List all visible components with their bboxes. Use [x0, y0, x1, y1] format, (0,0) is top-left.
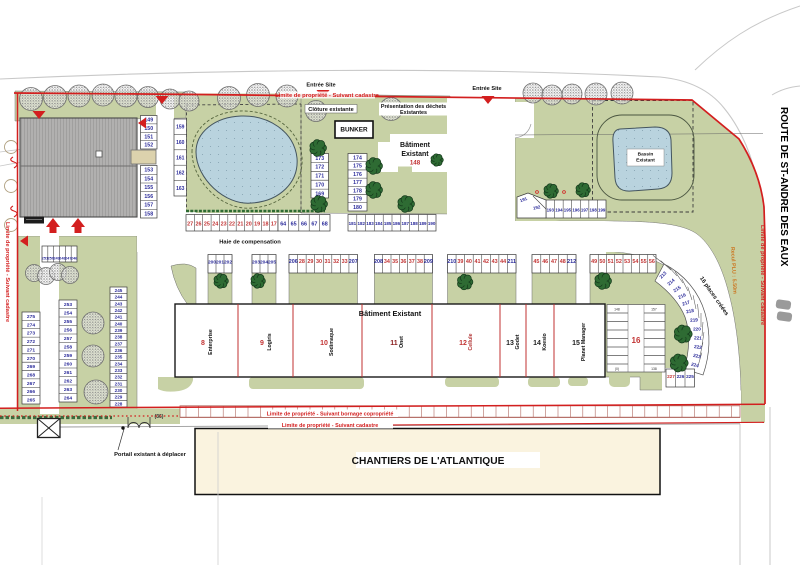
svg-text:228: 228: [115, 401, 123, 406]
svg-text:253: 253: [64, 302, 72, 308]
svg-text:256: 256: [64, 328, 72, 334]
svg-text:27: 27: [187, 222, 193, 228]
svg-text:23: 23: [221, 222, 227, 228]
svg-text:207: 207: [349, 259, 358, 265]
svg-text:182: 182: [357, 221, 365, 226]
svg-text:162: 162: [176, 171, 185, 177]
svg-text:210: 210: [447, 259, 456, 265]
svg-text:38: 38: [417, 259, 423, 265]
svg-text:265: 265: [27, 398, 35, 404]
svg-text:175: 175: [353, 164, 362, 170]
svg-text:187: 187: [401, 221, 409, 226]
svg-text:263: 263: [64, 387, 72, 393]
svg-text:245: 245: [115, 288, 123, 293]
svg-text:212: 212: [567, 259, 576, 265]
svg-text:Entrée Site: Entrée Site: [472, 86, 501, 92]
svg-text:193: 193: [547, 208, 555, 213]
svg-text:199: 199: [598, 208, 606, 213]
svg-text:Logiris: Logiris: [267, 333, 273, 350]
svg-text:Bâtiment Existant: Bâtiment Existant: [359, 309, 422, 318]
svg-text:262: 262: [64, 379, 72, 385]
svg-text:18: 18: [262, 222, 268, 228]
svg-text:50: 50: [599, 259, 605, 265]
svg-text:232: 232: [115, 375, 123, 380]
svg-text:233: 233: [115, 368, 123, 373]
svg-text:240: 240: [115, 321, 123, 326]
svg-text:44: 44: [500, 259, 506, 265]
svg-text:Limite de propriété - Suivant: Limite de propriété - Suivant cadastre: [759, 225, 765, 325]
svg-text:35: 35: [392, 259, 398, 265]
svg-text:234: 234: [115, 361, 123, 366]
svg-text:270: 270: [27, 356, 35, 362]
svg-text:261: 261: [64, 370, 72, 376]
svg-text:190: 190: [428, 221, 436, 226]
svg-text:(36): (36): [155, 414, 164, 420]
svg-text:52: 52: [616, 259, 622, 265]
svg-text:225: 225: [686, 374, 694, 379]
svg-text:43: 43: [492, 259, 498, 265]
svg-text:153: 153: [144, 168, 153, 174]
svg-text:235: 235: [115, 355, 123, 360]
svg-text:227: 227: [667, 374, 675, 379]
svg-text:Cellule: Cellule: [468, 333, 474, 350]
svg-text:186: 186: [393, 221, 401, 226]
svg-text:Existant: Existant: [636, 158, 655, 164]
svg-text:36: 36: [400, 259, 406, 265]
svg-text:10: 10: [320, 340, 328, 347]
svg-text:154: 154: [144, 176, 153, 182]
svg-text:258: 258: [64, 345, 72, 351]
svg-text:29: 29: [307, 259, 313, 265]
svg-text:196: 196: [572, 208, 580, 213]
svg-text:231: 231: [115, 381, 123, 386]
svg-text:Koesio: Koesio: [542, 333, 548, 350]
svg-text:178: 178: [353, 188, 362, 194]
svg-text:33: 33: [342, 259, 348, 265]
svg-text:170: 170: [315, 183, 324, 189]
svg-text:152: 152: [144, 143, 153, 149]
svg-text:Bassin: Bassin: [638, 152, 654, 158]
svg-text:BUNKER: BUNKER: [340, 127, 368, 134]
svg-text:Limite de propriété - Suivant: Limite de propriété - Suivant cadastre: [282, 423, 378, 429]
svg-text:Portail existant à déplacer: Portail existant à déplacer: [114, 452, 187, 458]
svg-text:66: 66: [301, 222, 307, 228]
svg-text:138: 138: [651, 367, 657, 371]
svg-text:68: 68: [322, 222, 328, 228]
svg-text:255: 255: [64, 319, 72, 325]
svg-text:254: 254: [64, 311, 72, 317]
svg-text:244: 244: [115, 295, 123, 300]
svg-text:161: 161: [176, 155, 185, 161]
svg-text:267: 267: [27, 381, 35, 387]
svg-text:40: 40: [466, 259, 472, 265]
svg-text:56: 56: [649, 259, 655, 265]
svg-text:197: 197: [581, 208, 589, 213]
svg-text:259: 259: [64, 353, 72, 359]
svg-text:177: 177: [353, 180, 362, 186]
svg-text:20: 20: [246, 222, 252, 228]
svg-text:Planet Manager: Planet Manager: [581, 323, 587, 361]
svg-text:272: 272: [27, 339, 35, 345]
svg-text:266: 266: [27, 389, 35, 395]
svg-text:32: 32: [333, 259, 339, 265]
svg-text:25: 25: [204, 222, 210, 228]
svg-text:15: 15: [572, 340, 580, 347]
svg-text:226: 226: [677, 374, 685, 379]
svg-text:Onet: Onet: [399, 336, 405, 348]
svg-text:156: 156: [144, 194, 153, 200]
svg-text:271: 271: [27, 347, 35, 353]
svg-text:239: 239: [115, 328, 123, 333]
svg-text:159: 159: [176, 125, 185, 131]
svg-text:211: 211: [507, 259, 516, 265]
svg-text:180: 180: [353, 205, 362, 211]
svg-text:11: 11: [390, 340, 398, 347]
svg-text:275: 275: [27, 314, 35, 320]
svg-text:Haie de compensation: Haie de compensation: [219, 240, 281, 246]
svg-text:148: 148: [410, 160, 421, 167]
svg-text:21: 21: [237, 222, 243, 228]
svg-text:49: 49: [591, 259, 597, 265]
svg-text:181: 181: [349, 221, 357, 226]
svg-text:174: 174: [353, 155, 362, 161]
svg-text:17: 17: [271, 222, 277, 228]
svg-text:28: 28: [299, 259, 305, 265]
svg-text:Limite de propriété - Suivant: Limite de propriété - Suivant cadastre: [275, 93, 380, 99]
svg-text:243: 243: [115, 301, 123, 306]
svg-text:209: 209: [424, 259, 433, 265]
svg-text:51: 51: [608, 259, 614, 265]
svg-text:41: 41: [474, 259, 480, 265]
svg-text:206: 206: [289, 259, 298, 265]
svg-text:148: 148: [614, 308, 620, 312]
svg-text:194: 194: [555, 208, 563, 213]
svg-text:176: 176: [353, 172, 362, 178]
svg-text:34: 34: [384, 259, 390, 265]
svg-text:157: 157: [144, 203, 153, 209]
svg-text:Limite de propriété - Suivant: Limite de propriété - Suivant bornage co…: [267, 411, 394, 417]
svg-text:208: 208: [374, 259, 383, 265]
svg-text:179: 179: [353, 197, 362, 203]
svg-text:183: 183: [366, 221, 374, 226]
svg-text:22: 22: [229, 222, 235, 228]
svg-text:54: 54: [632, 259, 638, 265]
svg-text:Existant: Existant: [401, 151, 429, 158]
svg-text:219: 219: [690, 317, 699, 323]
svg-text:155: 155: [144, 185, 153, 191]
svg-text:184: 184: [375, 221, 383, 226]
svg-text:189: 189: [419, 221, 427, 226]
svg-text:205: 205: [268, 260, 276, 266]
svg-text:185: 185: [384, 221, 392, 226]
svg-text:64: 64: [280, 222, 286, 228]
svg-text:CHANTIERS DE L'ATLANTIQUE: CHANTIERS DE L'ATLANTIQUE: [352, 456, 505, 467]
svg-text:160: 160: [176, 140, 185, 146]
svg-text:39: 39: [457, 259, 463, 265]
svg-text:37: 37: [409, 259, 415, 265]
svg-text:47: 47: [551, 259, 557, 265]
svg-text:ROUTE DE ST-ANDRE DES EAUX: ROUTE DE ST-ANDRE DES EAUX: [778, 107, 789, 267]
svg-text:257: 257: [64, 336, 72, 342]
svg-text:158: 158: [144, 211, 153, 217]
svg-text:268: 268: [27, 372, 35, 378]
svg-text:46: 46: [542, 259, 548, 265]
svg-text:229: 229: [115, 395, 123, 400]
svg-text:Entrée Site: Entrée Site: [306, 83, 335, 89]
svg-text:157: 157: [651, 308, 657, 312]
svg-text:264: 264: [64, 396, 72, 402]
svg-text:53: 53: [624, 259, 630, 265]
svg-text:12: 12: [459, 340, 467, 347]
svg-text:202: 202: [224, 260, 232, 266]
svg-text:16: 16: [632, 336, 641, 345]
svg-text:42: 42: [483, 259, 489, 265]
svg-text:Existantes: Existantes: [400, 110, 427, 116]
svg-text:48: 48: [560, 259, 566, 265]
svg-text:236: 236: [115, 348, 123, 353]
svg-text:237: 237: [115, 341, 123, 346]
svg-text:13: 13: [506, 340, 514, 347]
svg-text:198: 198: [589, 208, 597, 213]
svg-text:274: 274: [27, 322, 35, 328]
svg-text:45: 45: [533, 259, 539, 265]
svg-text:221: 221: [694, 335, 703, 341]
svg-text:238: 238: [115, 335, 123, 340]
svg-text:Enterprise: Enterprise: [208, 329, 214, 355]
svg-text:188: 188: [410, 221, 418, 226]
svg-text:(0): (0): [615, 367, 619, 371]
svg-text:55: 55: [641, 259, 647, 265]
svg-text:273: 273: [27, 331, 35, 337]
svg-text:241: 241: [115, 315, 123, 320]
svg-text:260: 260: [64, 362, 72, 368]
svg-text:24: 24: [212, 222, 218, 228]
svg-text:195: 195: [564, 208, 572, 213]
svg-text:269: 269: [27, 364, 35, 370]
svg-text:14: 14: [533, 340, 541, 347]
svg-text:Bâtiment: Bâtiment: [400, 142, 431, 149]
svg-text:Limite de propriété - Suivant: Limite de propriété - Suivant cadastre: [4, 222, 10, 322]
svg-text:220: 220: [693, 327, 701, 332]
svg-text:163: 163: [176, 186, 185, 192]
svg-text:230: 230: [115, 388, 123, 393]
svg-text:8: 8: [201, 340, 205, 347]
svg-text:151: 151: [144, 134, 153, 140]
svg-text:30: 30: [316, 259, 322, 265]
svg-text:242: 242: [115, 308, 123, 313]
svg-text:Sodimaque: Sodimaque: [329, 328, 335, 356]
svg-text:Clôture existante: Clôture existante: [308, 107, 353, 113]
svg-text:31: 31: [325, 259, 331, 265]
svg-text:172: 172: [315, 165, 324, 171]
svg-text:246: 246: [71, 256, 78, 261]
svg-text:171: 171: [315, 174, 324, 180]
svg-text:Godet: Godet: [515, 334, 521, 349]
svg-text:65: 65: [291, 222, 297, 228]
svg-text:9: 9: [260, 340, 264, 347]
svg-text:67: 67: [311, 222, 317, 228]
svg-text:19: 19: [254, 222, 260, 228]
svg-text:26: 26: [196, 222, 202, 228]
